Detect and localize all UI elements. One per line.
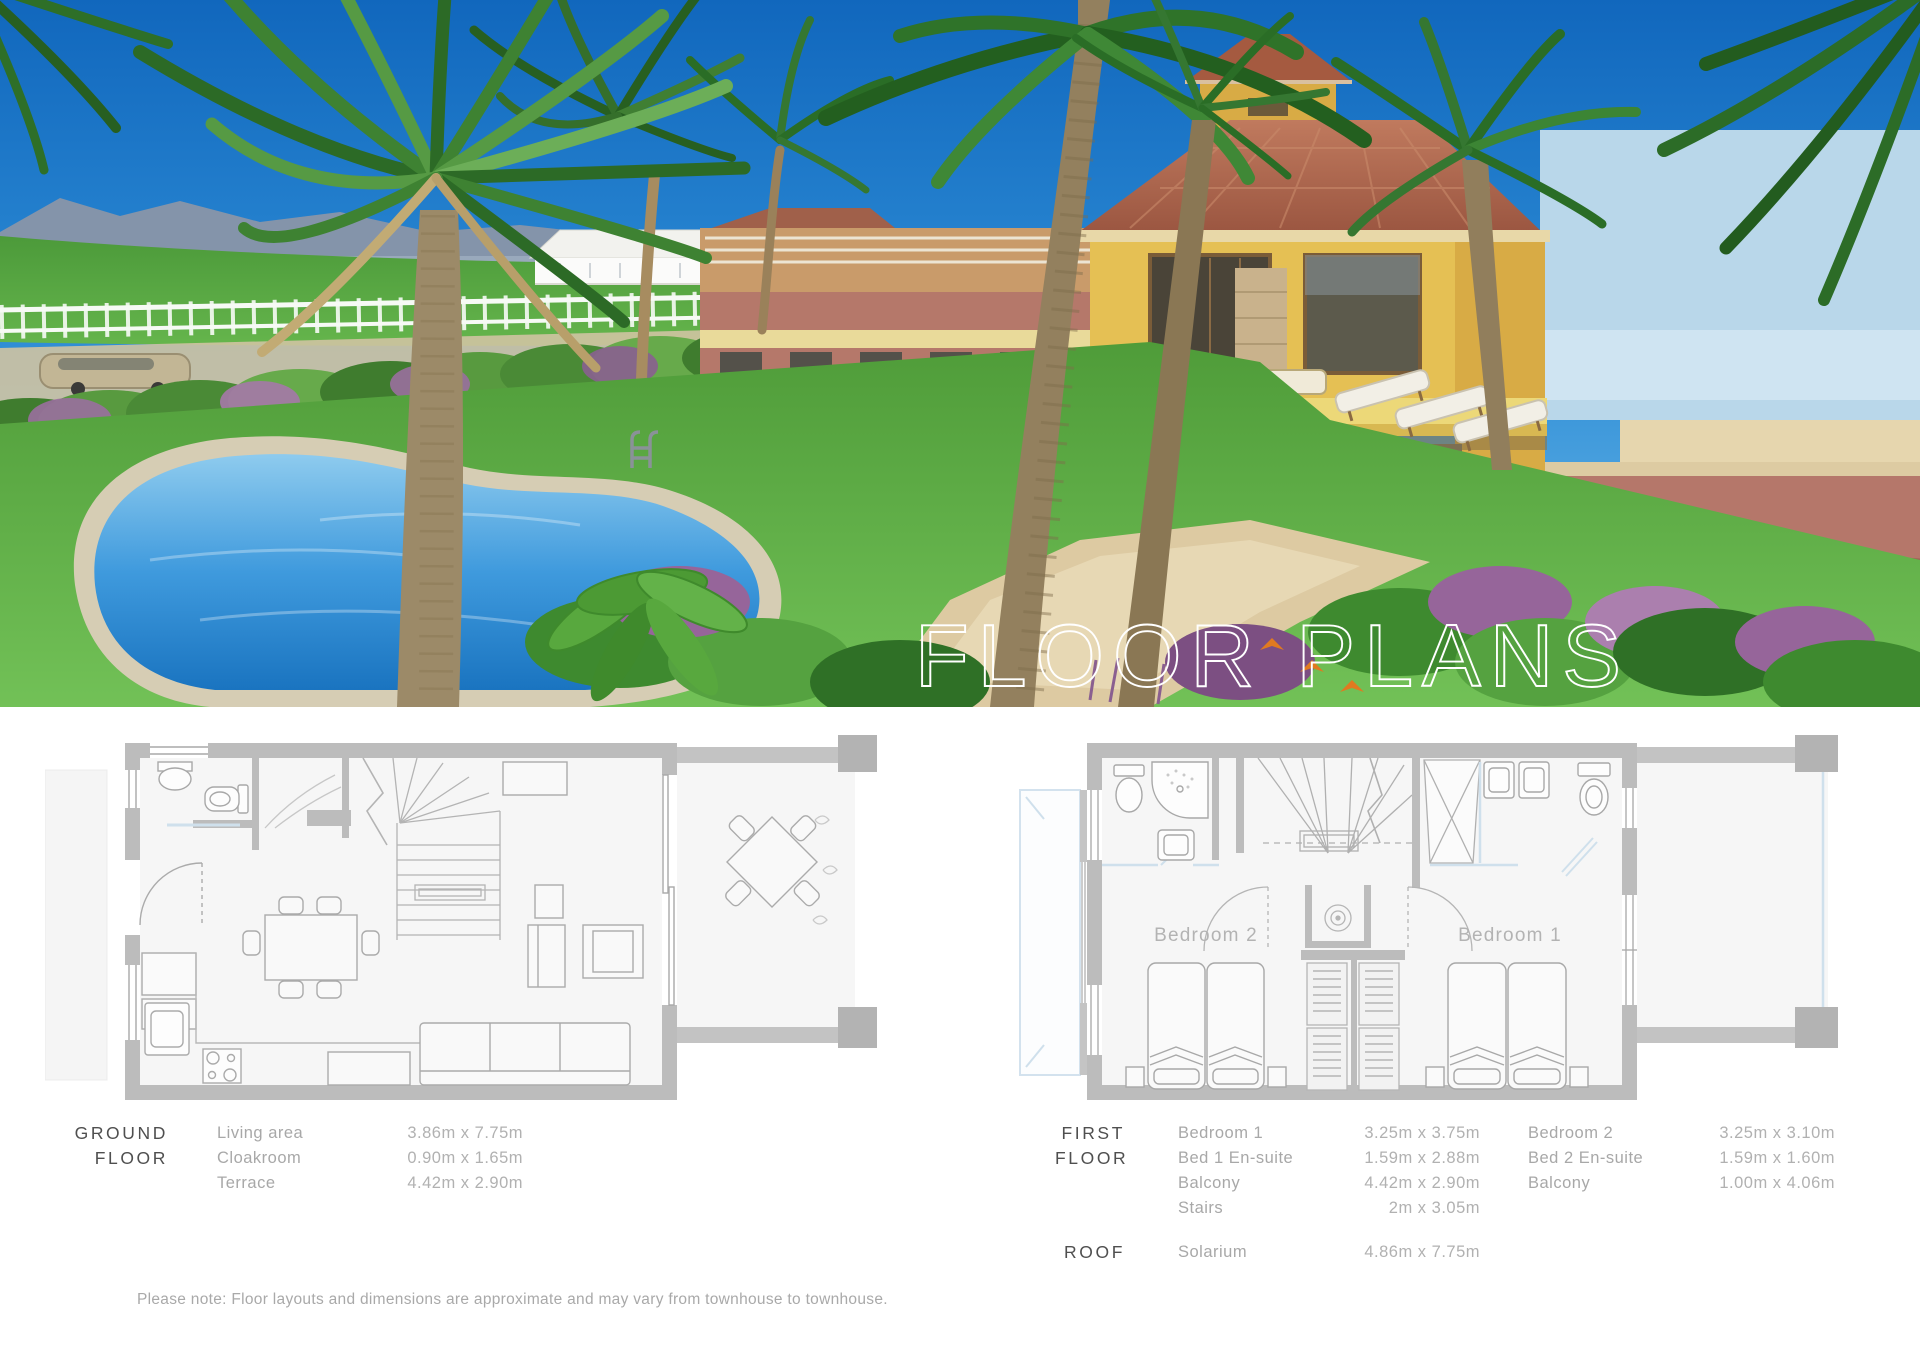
first-floor-dimensions: FIRST FLOOR Bedroom 1 3.25m x 3.75m Bed … (1055, 1121, 1835, 1226)
room-row: Balcony 1.00m x 4.06m (1528, 1171, 1835, 1196)
toilet-icon (1578, 763, 1610, 776)
corner-pillar (838, 1007, 877, 1048)
coffee-table (328, 1052, 410, 1085)
room-row: Bedroom 2 3.25m x 3.10m (1528, 1121, 1835, 1146)
first-floor-label: FIRST FLOOR (1055, 1121, 1125, 1171)
room-row: Balcony 4.42m x 2.90m (1178, 1171, 1480, 1196)
bedroom1-label: Bedroom 1 (1458, 925, 1562, 946)
neighbour-outline (45, 770, 107, 1080)
room-row: Bed 2 En-suite 1.59m x 1.60m (1528, 1146, 1835, 1171)
terrace-dining-set (724, 814, 822, 908)
first-floor-plan: Bedroom 2 Bedroom 1 (1018, 735, 1838, 1100)
ground-floor-dimensions: GROUND FLOOR Living area 3.86m x 7.75m C… (55, 1121, 523, 1206)
ground-floor-plan (45, 735, 877, 1100)
first-floor-rooms-col2: Bedroom 2 3.25m x 3.10m Bed 2 En-suite 1… (1528, 1121, 1835, 1196)
ground-floor-label: GROUND FLOOR (55, 1121, 168, 1171)
wardrobes (1301, 950, 1405, 1090)
room-row: Bed 1 En-suite 1.59m x 2.88m (1178, 1146, 1480, 1171)
left-balcony (1020, 790, 1087, 1075)
bedroom2-label: Bedroom 2 (1154, 925, 1258, 946)
room-row: Terrace 4.42m x 2.90m (217, 1171, 523, 1196)
hero-photo: FLOOR PLANS (0, 0, 1920, 707)
sideboard (503, 762, 567, 795)
roof-label: ROOF (1055, 1240, 1125, 1265)
sink-icon (158, 762, 192, 790)
hob-icon (203, 1049, 241, 1083)
toilet-icon (205, 785, 248, 813)
brochure-page: FLOOR PLANS (0, 0, 1920, 1357)
room-row: Living area 3.86m x 7.75m (217, 1121, 523, 1146)
first-floor-rooms-col1: Bedroom 1 3.25m x 3.75m Bed 1 En-suite 1… (1178, 1121, 1480, 1221)
ground-floor-rooms: Living area 3.86m x 7.75m Cloakroom 0.90… (217, 1121, 523, 1196)
roof-rooms: Solarium 4.86m x 7.75m (1178, 1240, 1480, 1265)
room-row: Solarium 4.86m x 7.75m (1178, 1240, 1480, 1265)
toilet-icon (1114, 765, 1144, 776)
room-row: Bedroom 1 3.25m x 3.75m (1178, 1121, 1480, 1146)
corner-pillar (838, 735, 877, 772)
room-row: Stairs 2m x 3.05m (1178, 1196, 1480, 1221)
sofa (420, 1023, 630, 1085)
room-row: Cloakroom 0.90m x 1.65m (217, 1146, 523, 1171)
hero-title: FLOOR PLANS (915, 606, 1630, 705)
corner-pillar (1795, 1007, 1838, 1048)
disclaimer-note: Please note: Floor layouts and dimension… (137, 1291, 888, 1309)
corner-pillar (1795, 735, 1838, 772)
roof-dimensions: ROOF Solarium 4.86m x 7.75m (1055, 1240, 1480, 1270)
